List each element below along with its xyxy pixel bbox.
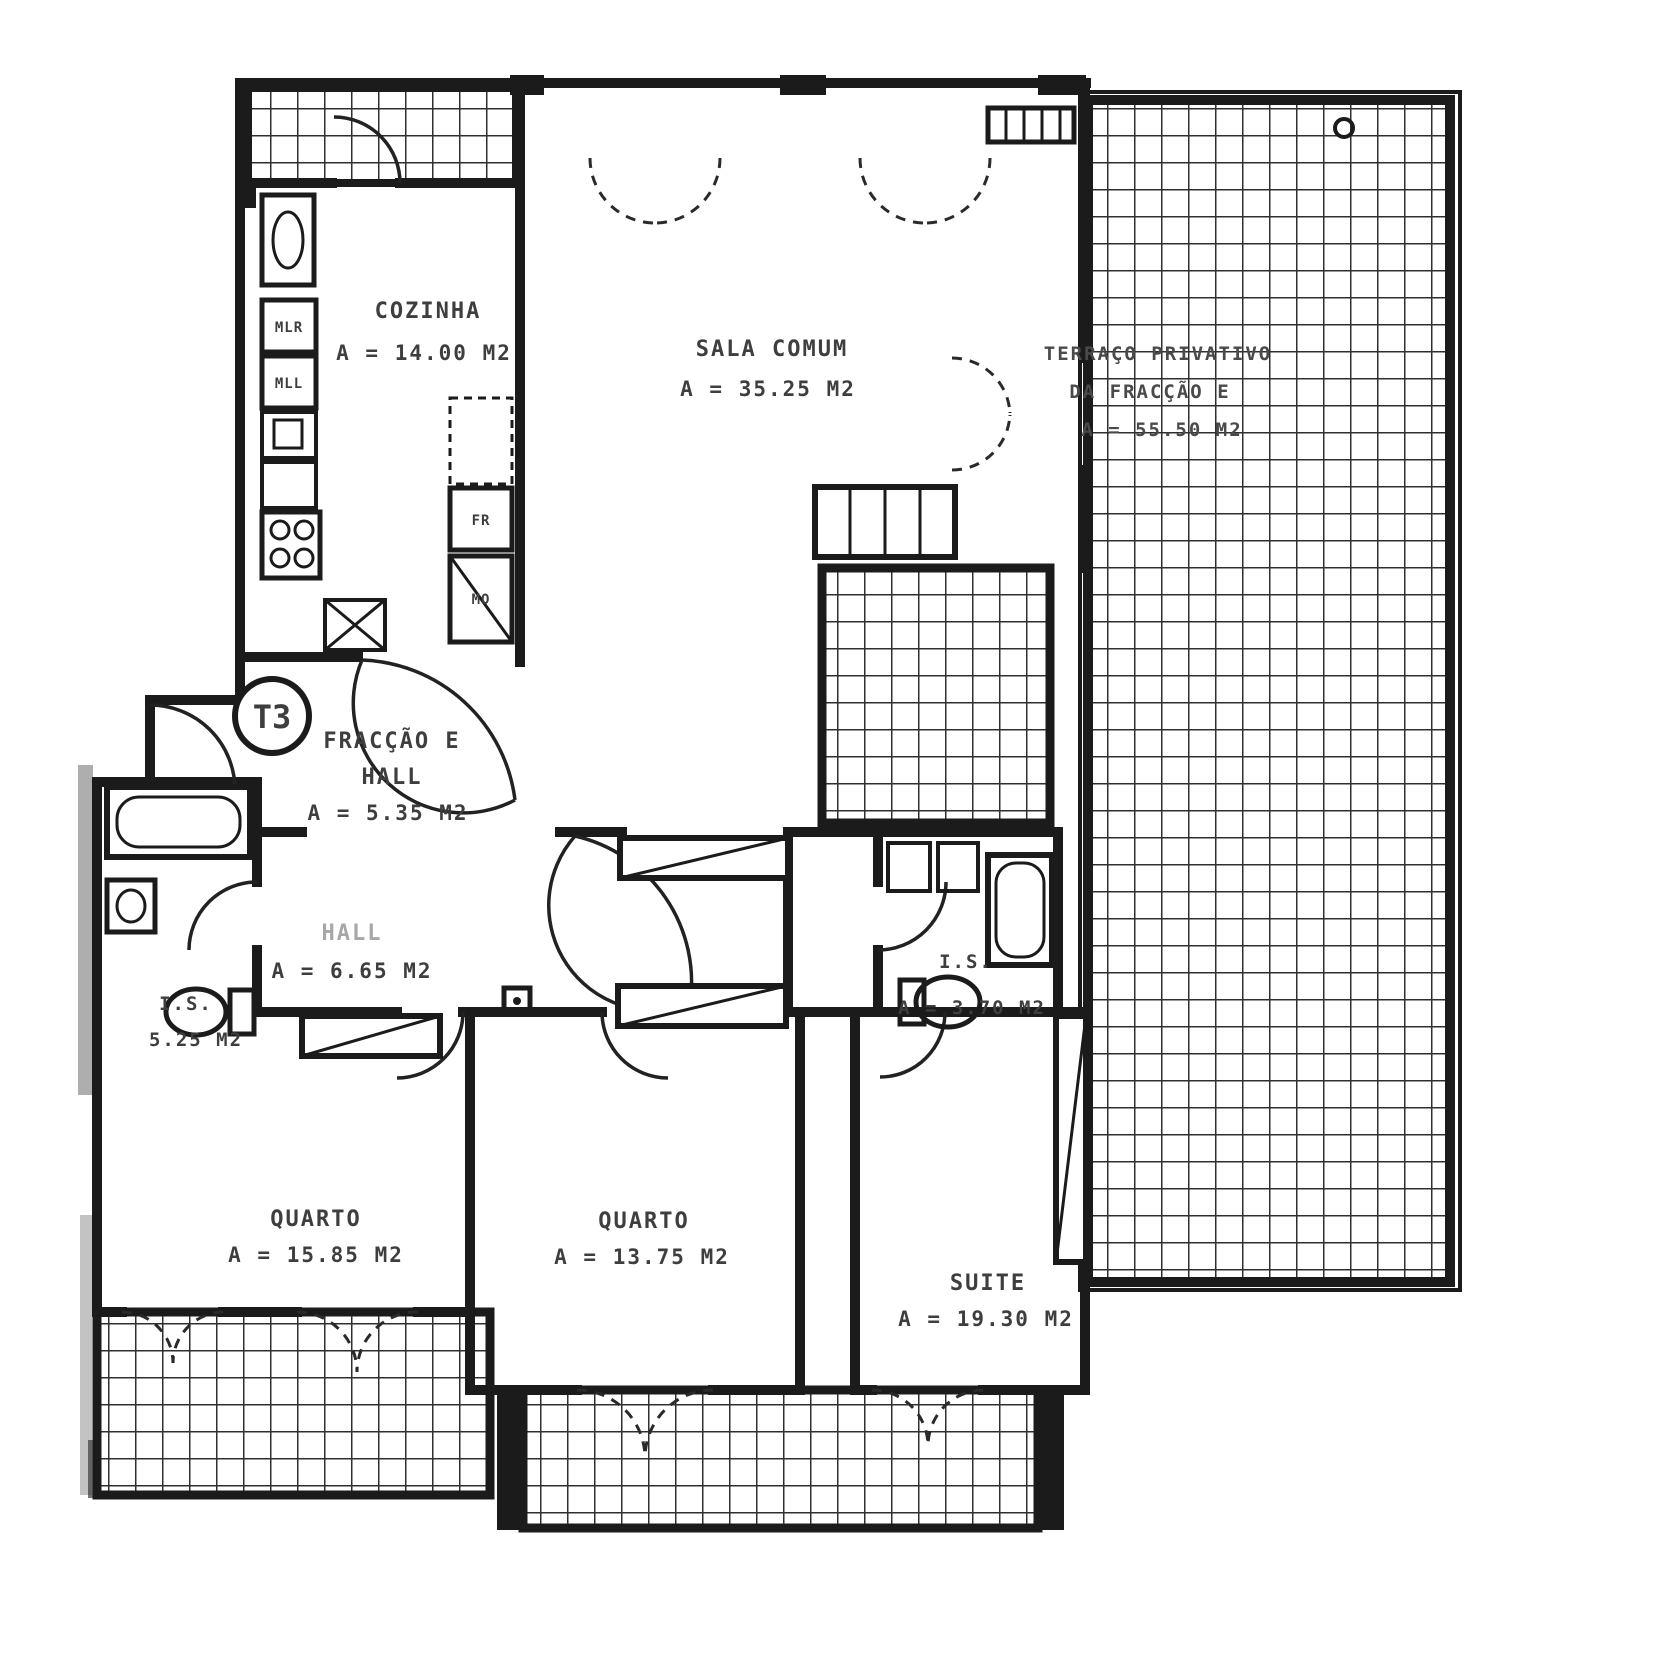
label-mll: MLL xyxy=(275,376,303,392)
label-cozinha-name: COZINHA xyxy=(375,299,482,324)
label-mlr: MLR xyxy=(275,320,303,336)
label-cozinha-area: A = 14.00 M2 xyxy=(336,341,512,365)
patio-tiles xyxy=(822,568,1050,823)
type-badge: T3 xyxy=(235,679,309,753)
wall-quarto-center xyxy=(470,1012,855,1390)
sink-left xyxy=(107,880,155,932)
sink-left-basin xyxy=(117,890,145,922)
french-door-sala-1 xyxy=(590,158,720,223)
label-is-left-name: I.S. xyxy=(159,993,213,1015)
hall-floor-box-dot xyxy=(513,997,521,1005)
label-terraco-area: A = 55.50 M2 xyxy=(1081,419,1242,441)
label-entrada-area: A = 5.35 M2 xyxy=(307,801,468,825)
pillar-3 xyxy=(1038,75,1086,95)
terrace-tiles xyxy=(1088,100,1450,1282)
pillar-1 xyxy=(510,75,544,95)
label-mo: MO xyxy=(472,592,491,608)
label-is-right-name: I.S. xyxy=(939,951,993,973)
bathtub-right xyxy=(988,855,1052,965)
counter-shelves xyxy=(450,398,512,484)
label-hall-name: HALL xyxy=(322,921,383,946)
label-is-right-area: A = 3.70 M2 xyxy=(898,997,1046,1019)
label-sala-area: A = 35.25 M2 xyxy=(680,377,856,401)
label-fr: FR xyxy=(472,513,491,529)
french-door-terrace xyxy=(952,358,1010,470)
bathtub-left-inner xyxy=(117,797,240,847)
cabinet-is-right-1 xyxy=(888,843,930,891)
label-is-left-area: 5.25 M2 xyxy=(149,1029,243,1051)
wardrobes xyxy=(302,838,1086,1262)
balcony-left-tiles xyxy=(97,1312,490,1495)
stove-burner-2 xyxy=(295,521,313,539)
stove-burner-1 xyxy=(271,521,289,539)
label-hall-area: A = 6.65 M2 xyxy=(271,959,432,983)
balcony-center-tiles xyxy=(523,1390,1038,1528)
kitchen-sink-cross xyxy=(325,600,385,650)
label-entrada-line2: HALL xyxy=(362,765,423,790)
label-quarto-left-area: A = 15.85 M2 xyxy=(228,1243,404,1267)
counter-box-2 xyxy=(262,462,316,508)
floor-plan-page: T3 COZINHA A = 14.00 M2 SALA COMUM A = 3… xyxy=(0,0,1673,1665)
french-door-sala-2 xyxy=(860,158,990,223)
label-quarto-center-area: A = 13.75 M2 xyxy=(554,1245,730,1269)
label-terraco-line1: TERRAÇO PRIVATIVO xyxy=(1044,343,1272,365)
floor-plan-drawing: T3 COZINHA A = 14.00 M2 SALA COMUM A = 3… xyxy=(0,0,1673,1665)
label-quarto-left-name: QUARTO xyxy=(270,1207,361,1232)
toilet-left-tank xyxy=(230,990,254,1034)
label-suite-name: SUITE xyxy=(950,1271,1026,1296)
door-bathroom-left xyxy=(189,882,257,950)
label-suite-area: A = 19.30 M2 xyxy=(898,1307,1074,1331)
stove-burner-3 xyxy=(271,549,289,567)
pillar-2 xyxy=(780,75,826,95)
bathtub-right-inner xyxy=(996,863,1044,957)
label-entrada-line1: FRACÇÃO E xyxy=(323,728,460,754)
stove xyxy=(262,512,320,578)
counter-box-1-inner xyxy=(274,420,302,448)
laundry-sink xyxy=(262,195,314,285)
patio-step-lines xyxy=(850,487,920,557)
label-terraco-line2: DA FRACÇÃO E xyxy=(1069,379,1230,403)
laundry-sink-basin xyxy=(273,212,303,268)
pillar-balcony-left xyxy=(497,1388,523,1530)
label-sala-name: SALA COMUM xyxy=(696,337,848,362)
cabinet-is-right-2 xyxy=(938,843,978,891)
radiator-fins xyxy=(1006,108,1060,142)
wall-suite xyxy=(855,1012,1085,1390)
pillar-balcony-right xyxy=(1038,1388,1064,1530)
scan-smudge-left xyxy=(78,765,93,1095)
type-badge-label: T3 xyxy=(253,698,292,736)
label-quarto-center-name: QUARTO xyxy=(598,1209,689,1234)
stove-burner-4 xyxy=(295,549,313,567)
